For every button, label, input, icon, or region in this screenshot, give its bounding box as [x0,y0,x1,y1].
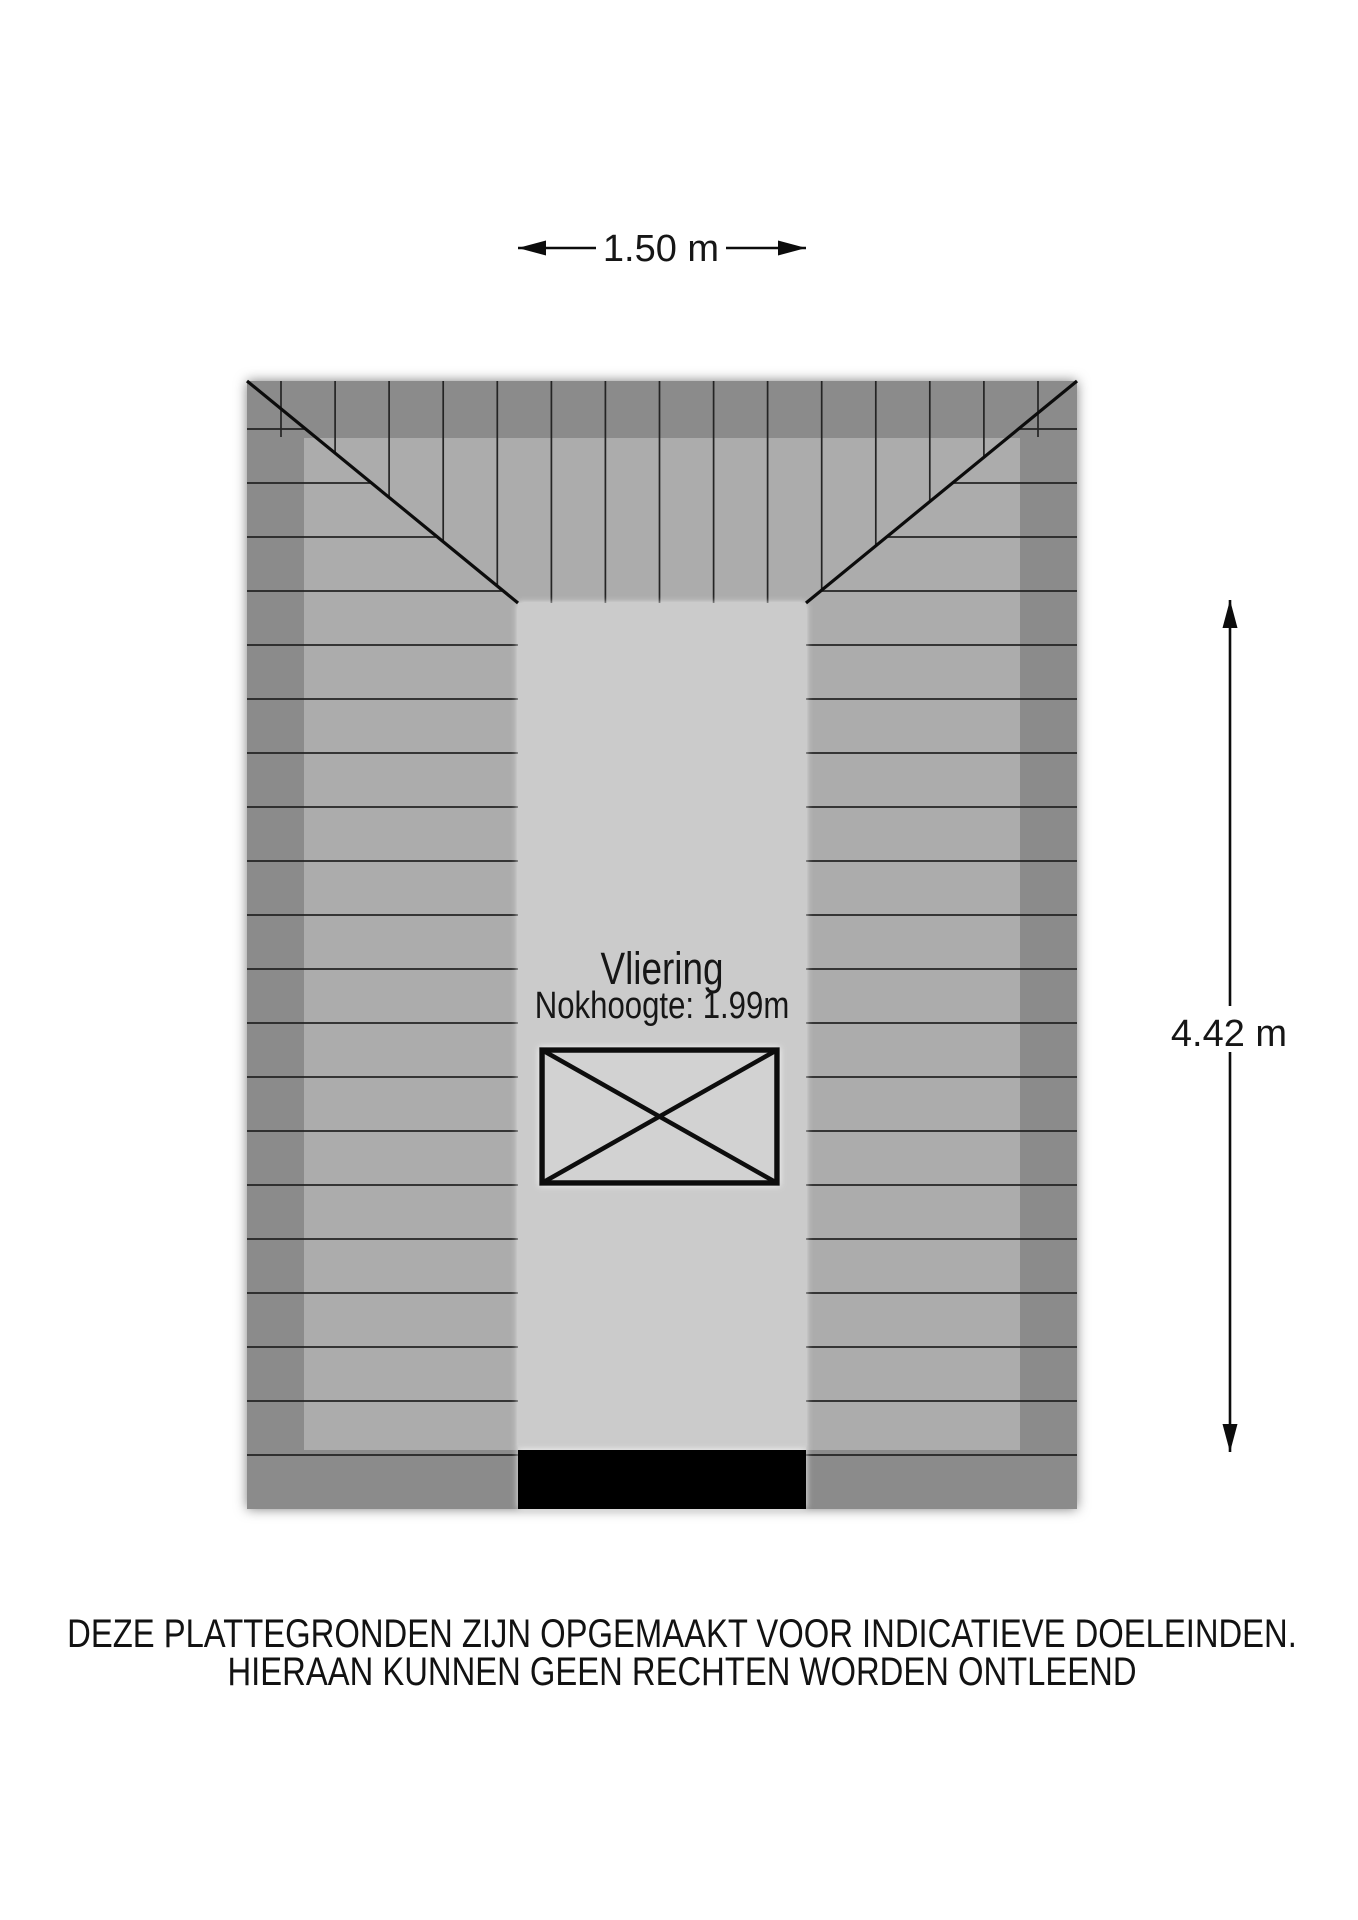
arrow-up-icon [1223,600,1238,628]
arrow-right-icon [778,241,806,256]
height-dimension-label: 4.42 m [1171,1013,1287,1055]
room-detail-label: Nokhoogte: 1.99m [535,985,790,1027]
arrow-down-icon [1223,1424,1238,1452]
height-dimension: 4.42 m [1171,600,1287,1452]
width-dimension-label: 1.50 m [603,228,719,270]
arrow-left-icon [518,241,546,256]
void-marker [542,1050,777,1183]
width-dimension: 1.50 m [518,228,806,270]
floorplan-page: Vliering Nokhoogte: 1.99m 1.50 m 4.42 m … [0,0,1358,1920]
disclaimer-line-2: HIERAAN KUNNEN GEEN RECHTEN WORDEN ONTLE… [227,1649,1136,1694]
solid-bar [518,1450,806,1509]
floorplan-canvas: Vliering Nokhoogte: 1.99m 1.50 m 4.42 m … [0,0,1358,1920]
